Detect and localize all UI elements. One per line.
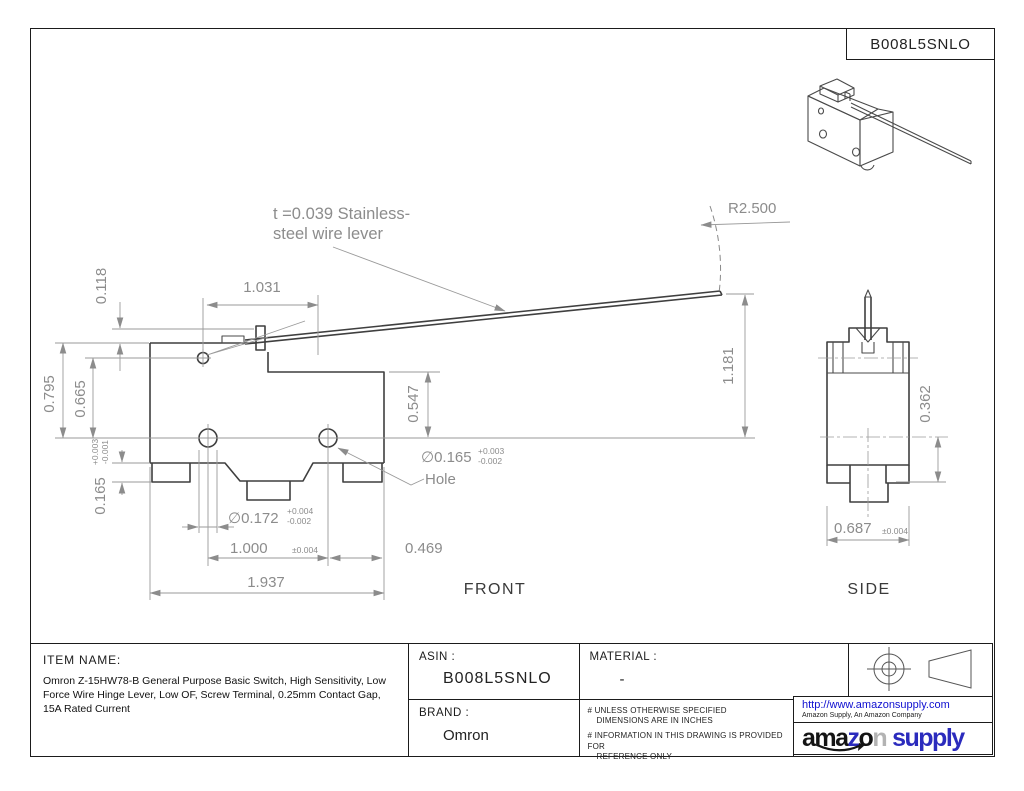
item-name-cell: ITEM NAME: Omron Z-15HW78-B General Purp…: [30, 643, 409, 757]
logo-cell: amazon supply: [793, 722, 993, 755]
dim-1937: 1.937: [247, 574, 285, 591]
dim-0165-left-tol-minus: -0.001: [100, 440, 110, 464]
item-name-text: Omron Z-15HW78-B General Purpose Basic S…: [43, 674, 395, 717]
note-dimensions: # UNLESS OTHERWISE SPECIFIED DIMENSIONS …: [588, 706, 785, 727]
dim-0547: 0.547: [405, 385, 422, 423]
dim-1000-tol: ±0.004: [292, 545, 318, 555]
dim-0172-tol-plus: +0.004: [287, 506, 314, 516]
brand-cell: BRAND : Omron: [408, 699, 580, 758]
dim-1031: 1.031: [243, 279, 281, 296]
lever-note-line1: t =0.039 Stainless-: [273, 205, 410, 223]
annotations: t =0.039 Stainless- steel wire lever R2.…: [273, 200, 891, 598]
side-view: 0.362 0.687 ±0.004: [818, 290, 948, 546]
dim-hole-dia-tol-plus: +0.003: [478, 446, 505, 456]
dim-0172-tol-minus: -0.002: [287, 516, 311, 526]
front-view-label: FRONT: [464, 581, 527, 598]
dim-hole-dia: ∅0.165: [421, 449, 472, 466]
iso-wire-lever: [851, 103, 971, 164]
dim-0165-left: 0.165: [92, 477, 109, 515]
dim-0165-left-tol-plus: +0.003: [90, 439, 100, 466]
radius-label: R2.500: [728, 200, 776, 217]
dim-1000: 1.000: [230, 540, 268, 557]
asin-label: ASIN :: [419, 651, 569, 663]
item-name-label: ITEM NAME:: [43, 653, 396, 667]
asin-value: B008L5SNLO: [443, 670, 569, 688]
note-reference: # INFORMATION IN THIS DRAWING IS PROVIDE…: [588, 731, 785, 762]
material-value: -: [620, 671, 838, 688]
third-angle-projection-icon: [849, 644, 991, 695]
dim-0172: ∅0.172: [228, 510, 279, 527]
dim-hole-dia-tol-minus: -0.002: [478, 456, 502, 466]
isometric-view: [808, 79, 971, 170]
plunger-pin: [865, 297, 871, 340]
dim-0665: 0.665: [72, 380, 89, 418]
projection-symbol-cell: [848, 643, 993, 697]
lever-note-line2: steel wire lever: [273, 225, 384, 243]
amazon-smile-icon: [815, 743, 869, 755]
sheet-number-box: B008L5SNLO: [846, 28, 995, 60]
hole-label: Hole: [425, 471, 456, 488]
supplier-tagline: Amazon Supply, An Amazon Company: [802, 712, 984, 719]
brand-label: BRAND :: [419, 707, 569, 719]
dim-0795: 0.795: [41, 375, 58, 413]
dim-1181: 1.181: [720, 347, 737, 385]
lever-arc: [710, 206, 721, 293]
amazon-supply-logo: amazon supply: [802, 726, 964, 751]
dim-0118: 0.118: [93, 268, 110, 304]
dim-0687: 0.687: [834, 520, 872, 537]
dim-0687-tol: ±0.004: [882, 526, 908, 536]
brand-value: Omron: [443, 727, 569, 744]
notes-cell: # UNLESS OTHERWISE SPECIFIED DIMENSIONS …: [579, 699, 794, 758]
asin-cell: ASIN : B008L5SNLO: [408, 643, 580, 700]
front-dimensions: 0.118 1.031 0.795 0.665 0.165 +0.003 -0.…: [41, 268, 754, 600]
url-cell: http://www.amazonsupply.com Amazon Suppl…: [793, 696, 993, 724]
wire-lever: [245, 291, 722, 344]
material-cell: MATERIAL : -: [579, 643, 849, 700]
supplier-url: http://www.amazonsupply.com: [802, 699, 984, 711]
sheet-number: B008L5SNLO: [870, 36, 971, 53]
dim-0469: 0.469: [405, 540, 443, 557]
side-view-label: SIDE: [847, 581, 890, 598]
material-label: MATERIAL :: [590, 651, 838, 663]
drawing-sheet: 0.118 1.031 0.795 0.665 0.165 +0.003 -0.…: [0, 0, 1024, 791]
dim-0362: 0.362: [917, 385, 934, 423]
